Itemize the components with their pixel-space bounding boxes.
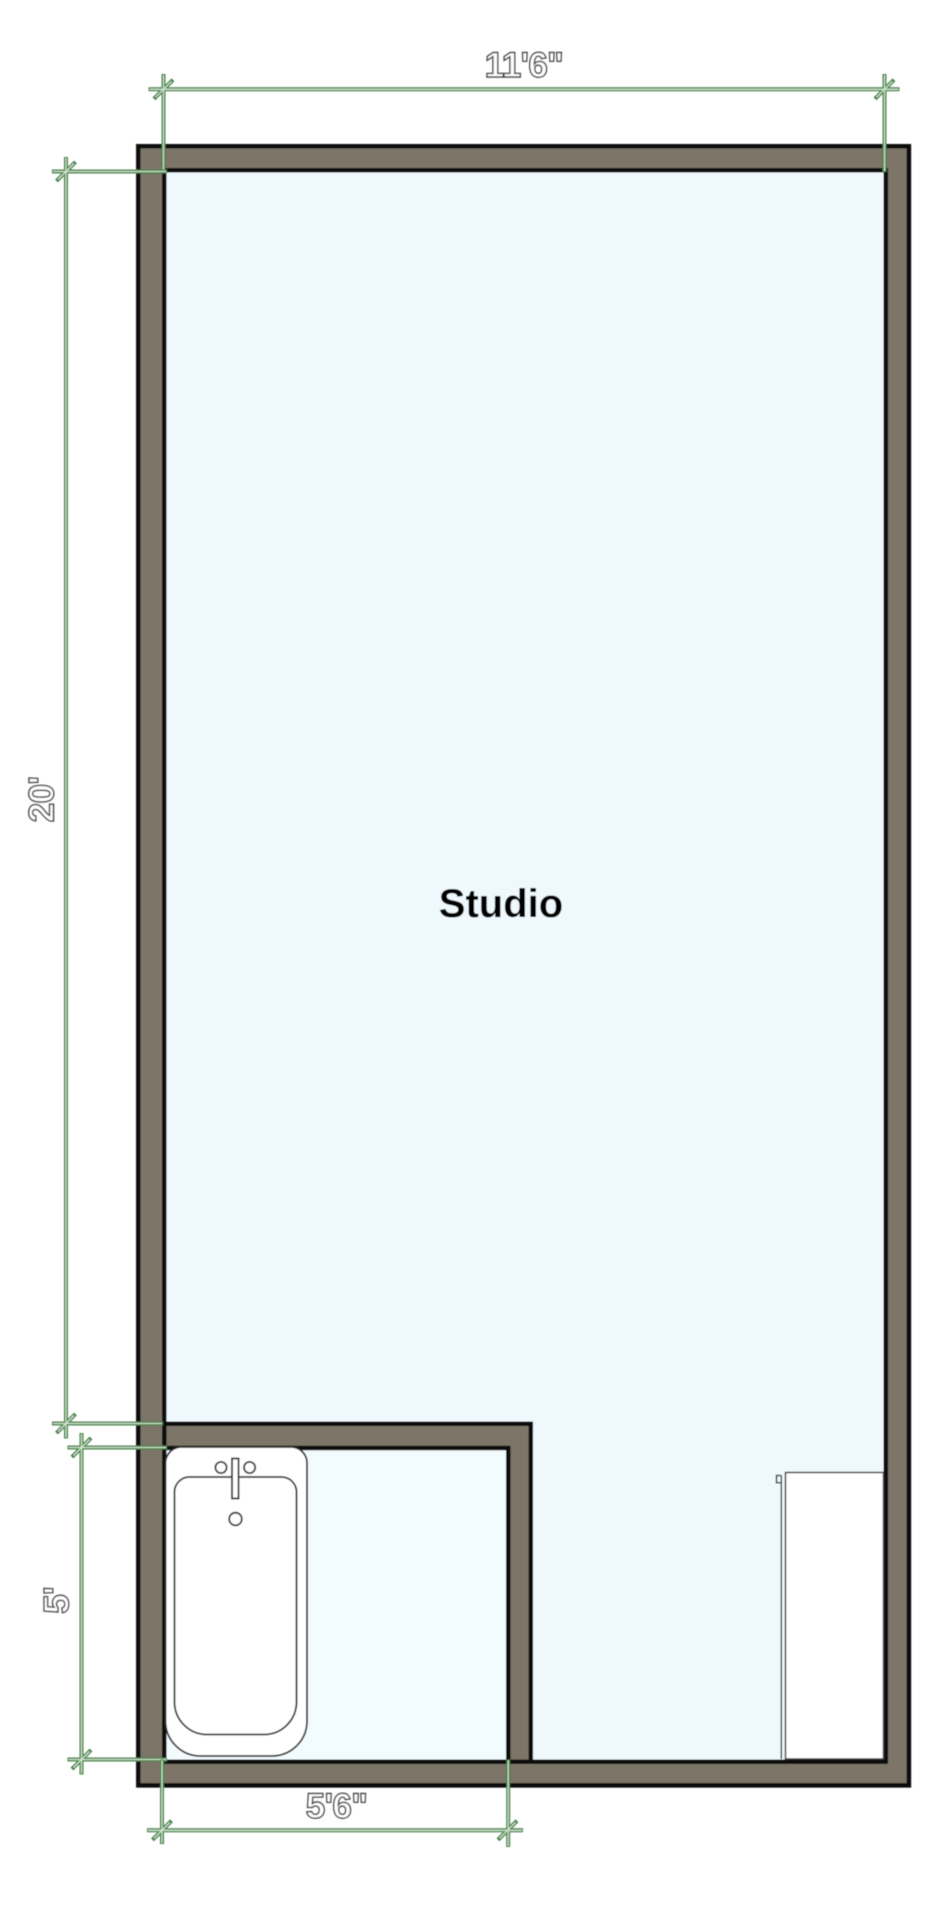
svg-text:Studio: Studio <box>439 882 563 926</box>
svg-text:5'6": 5'6" <box>306 1787 367 1826</box>
svg-text:11'6": 11'6" <box>485 46 563 85</box>
svg-text:20': 20' <box>23 777 62 822</box>
svg-text:5': 5' <box>38 1587 77 1614</box>
